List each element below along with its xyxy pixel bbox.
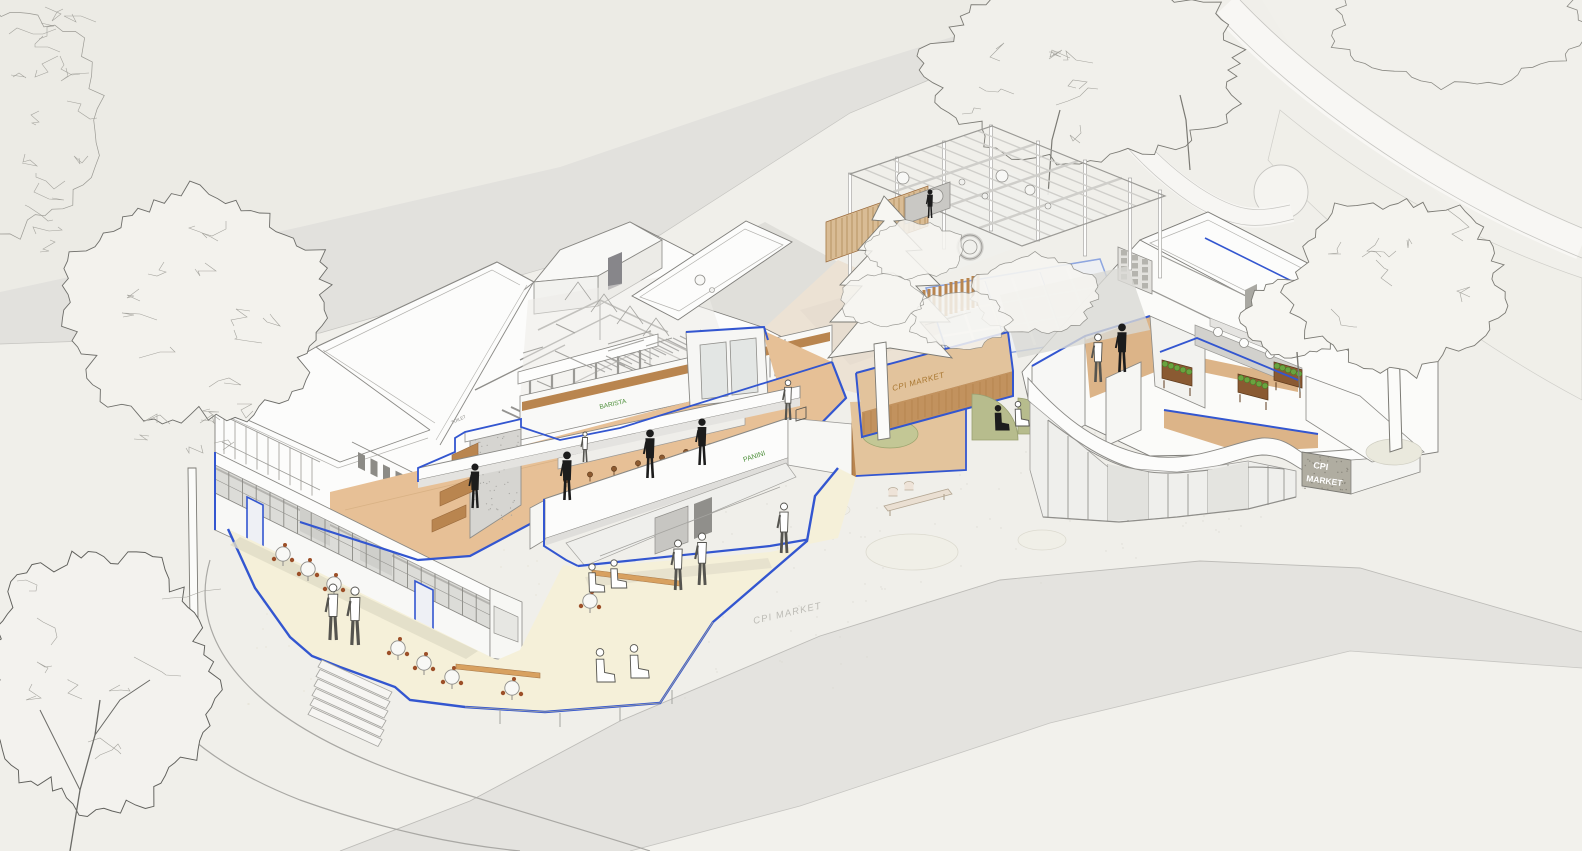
svg-text:CPI: CPI bbox=[1313, 460, 1329, 472]
